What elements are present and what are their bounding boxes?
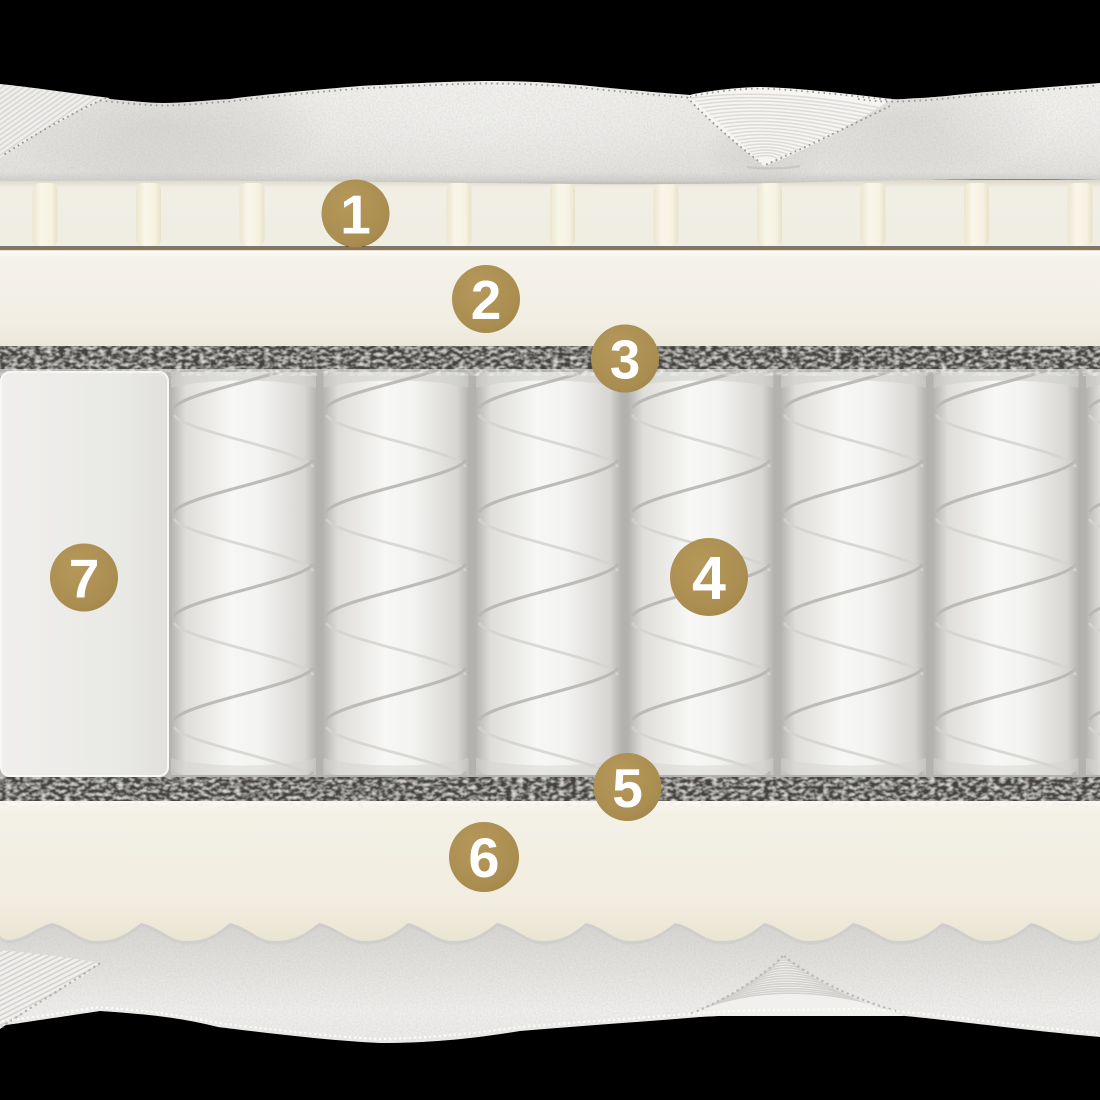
svg-text:3: 3 <box>610 328 641 390</box>
svg-text:2: 2 <box>471 269 502 331</box>
svg-text:1: 1 <box>340 183 371 245</box>
svg-text:5: 5 <box>612 757 643 819</box>
svg-text:6: 6 <box>468 826 499 889</box>
svg-text:4: 4 <box>692 544 726 612</box>
svg-text:7: 7 <box>69 547 100 609</box>
